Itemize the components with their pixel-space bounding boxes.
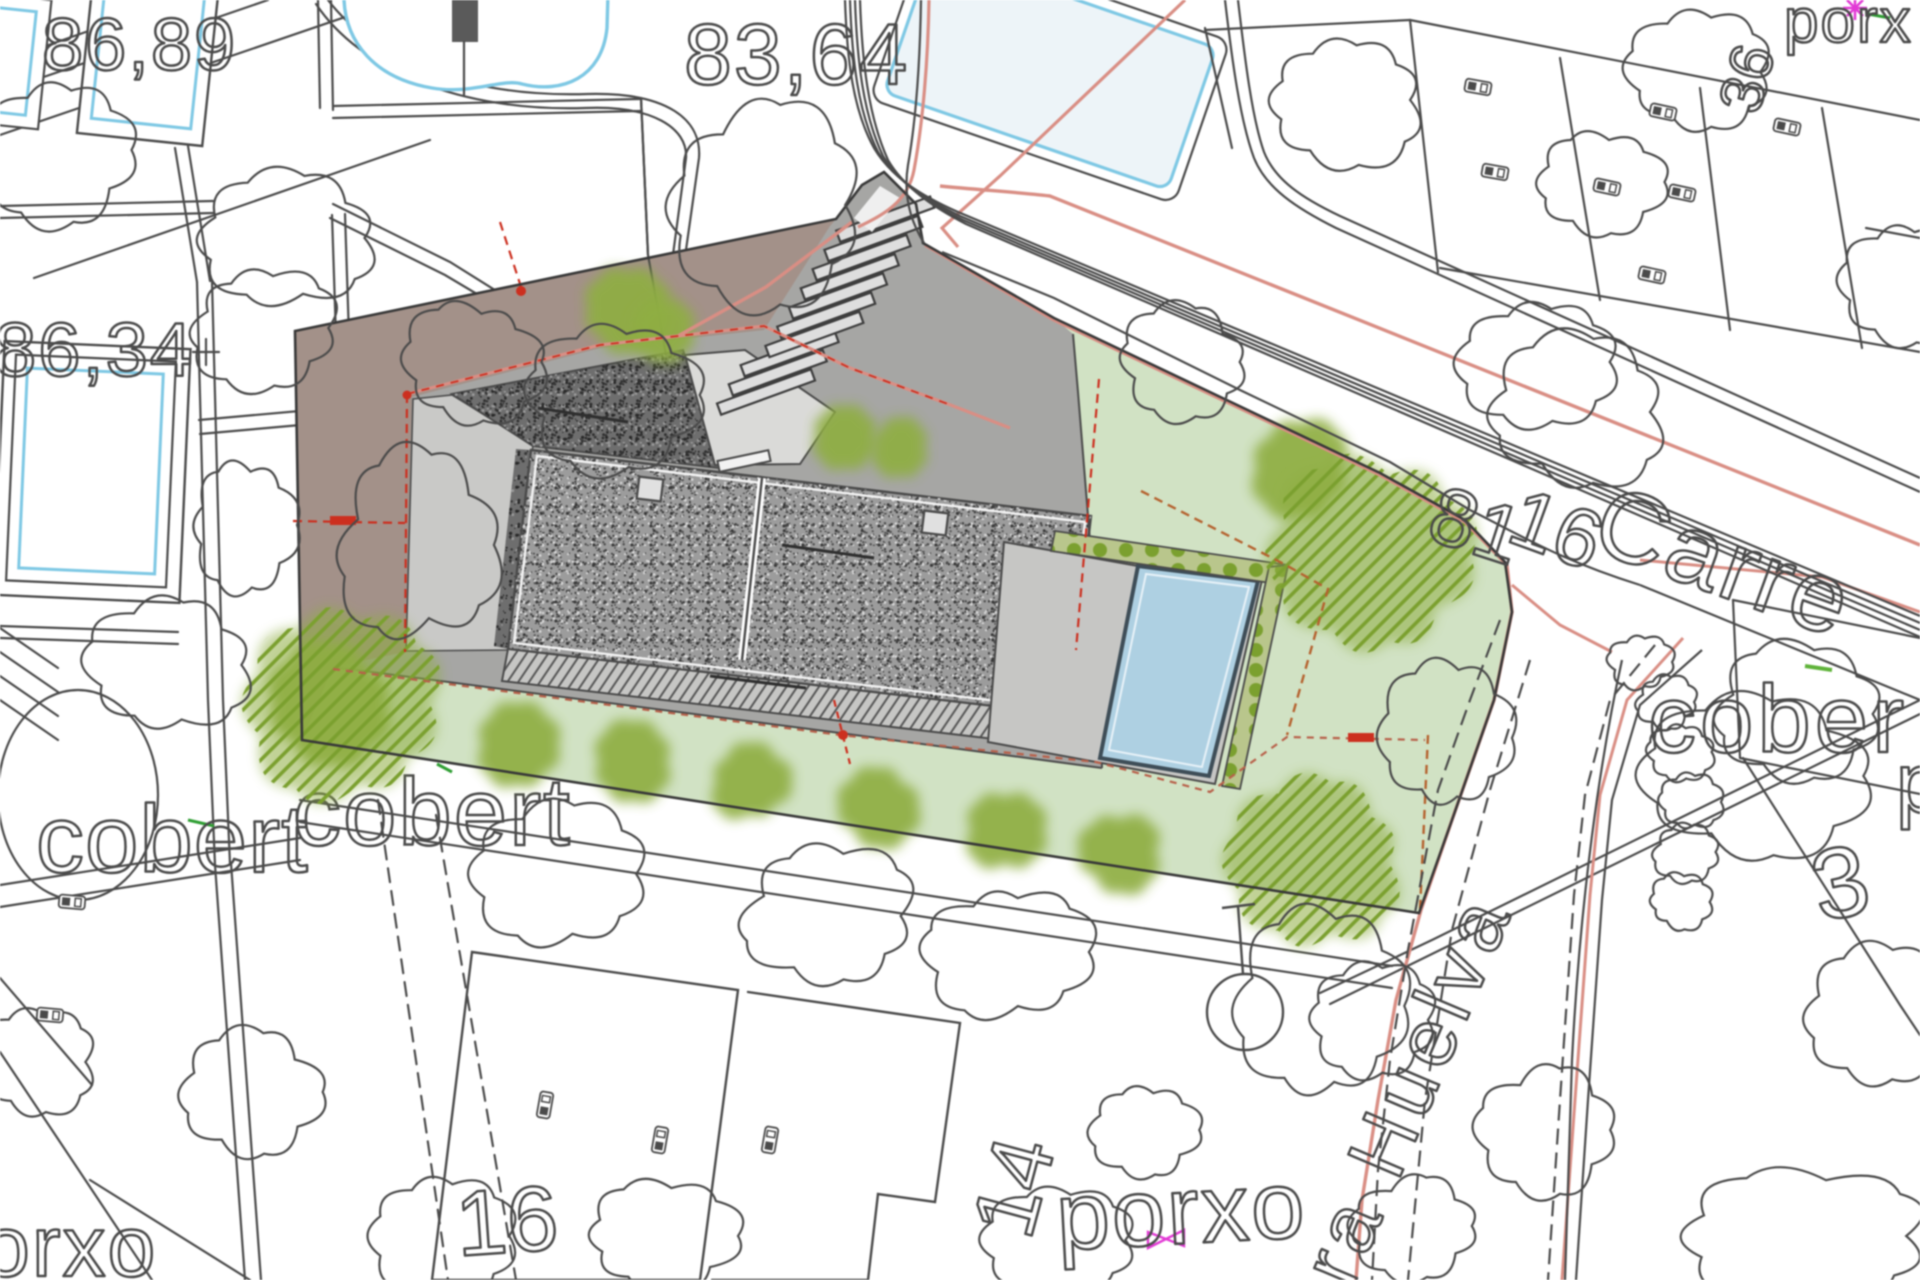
svg-text:cober: cober <box>1648 666 1908 773</box>
svg-text:orxo: orxo <box>0 1199 157 1280</box>
svg-text:p: p <box>1896 736 1920 830</box>
svg-text:16: 16 <box>452 1167 561 1276</box>
svg-text:83,64: 83,64 <box>684 7 909 103</box>
svg-text:porxo: porxo <box>1053 1151 1308 1271</box>
svg-text:cobert: cobert <box>36 786 309 893</box>
svg-text:86,89: 86,89 <box>42 3 237 86</box>
svg-text:86,34: 86,34 <box>0 308 194 393</box>
svg-text:porx: porx <box>1784 0 1913 56</box>
